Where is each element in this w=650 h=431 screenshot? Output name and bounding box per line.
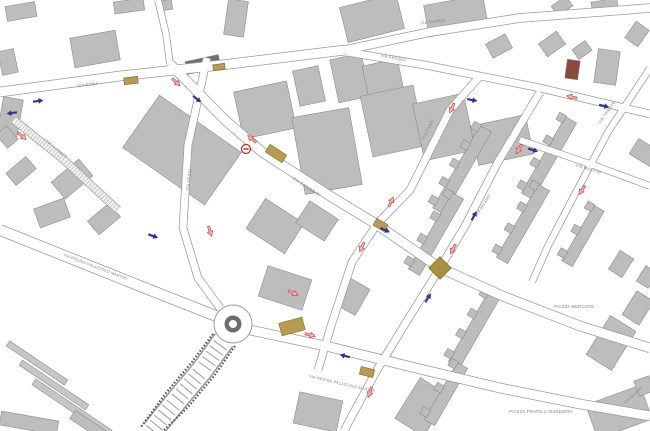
building — [565, 59, 581, 80]
building — [594, 49, 621, 86]
street-label: PIAZZA FRATELLI BANDIERA — [509, 409, 572, 414]
street-label: PIAZZA MERCATO — [554, 304, 594, 309]
raised-crossing-marker — [124, 76, 139, 85]
map-canvas: VIA ROMAVIA SUARDIVIA REGGIOVIA GARIBALD… — [0, 0, 650, 431]
map-page: VIA ROMAVIA SUARDIVIA REGGIOVIA GARIBALD… — [0, 0, 650, 431]
traffic-plan-map: VIA ROMAVIA SUARDIVIA REGGIOVIA GARIBALD… — [0, 0, 650, 431]
roundabout-island-center — [229, 320, 237, 328]
